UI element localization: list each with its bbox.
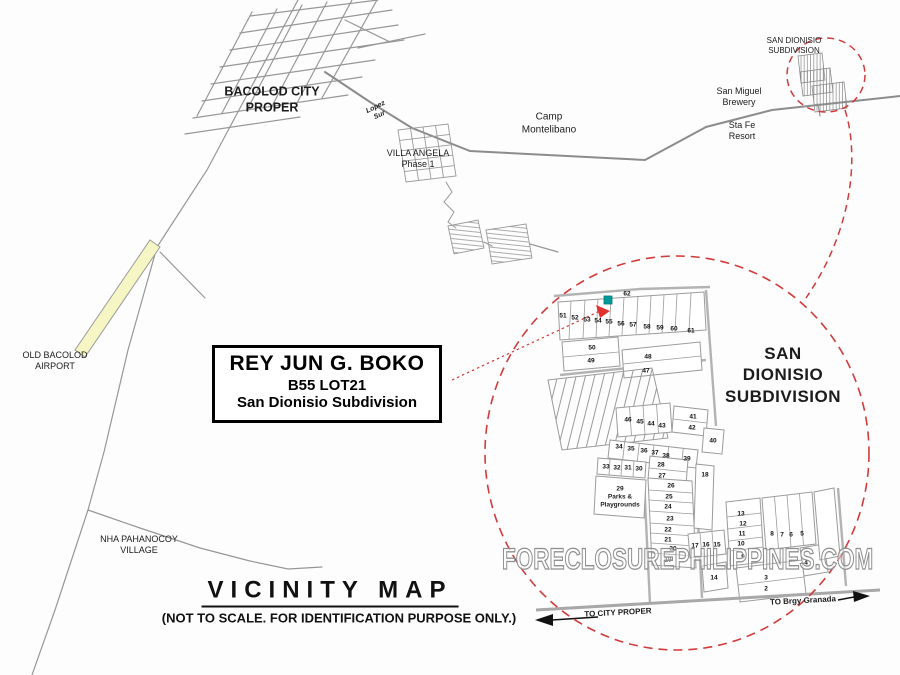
lot-number-14: 14	[710, 575, 718, 582]
lot-number-60: 60	[670, 326, 678, 333]
old-bacolod-airport-label: OLD BACOLOD AIRPORT	[22, 350, 87, 373]
lot-number-56: 56	[617, 321, 625, 328]
map-title: VICINITY MAP	[202, 577, 459, 608]
lot-number-28: 28	[657, 462, 665, 469]
subdivision-detail-blocks	[548, 287, 846, 604]
lot-number-32: 32	[613, 465, 621, 472]
lot-number-12: 12	[739, 521, 747, 528]
lot-number-17: 17	[691, 543, 699, 550]
lot-number-37: 37	[651, 450, 659, 457]
lot-number-51: 51	[559, 313, 567, 320]
parks-playgrounds-label: 29 Parks & Playgrounds	[600, 485, 639, 508]
lot-number-57: 57	[629, 322, 637, 329]
san-dionisio-top-label: SAN DIONISIO SUBDIVISION	[767, 36, 822, 56]
lot-number-9: 9	[741, 554, 745, 561]
lot-number-7: 7	[780, 532, 784, 539]
lot-number-62: 62	[623, 291, 631, 298]
lot-number-4: 4	[804, 560, 808, 567]
lot-number-39: 39	[683, 456, 691, 463]
lot-number-59: 59	[656, 325, 664, 332]
property-owner: REY JUN G. BOKO	[215, 352, 439, 376]
lot-number-43: 43	[658, 423, 666, 430]
lot-number-44: 44	[647, 421, 655, 428]
lot-number-6: 6	[789, 532, 793, 539]
map-subtitle: (NOT TO SCALE. FOR IDENTIFICATION PURPOS…	[162, 611, 516, 626]
lot-number-61: 61	[687, 328, 695, 335]
lot-number-40: 40	[709, 438, 717, 445]
san-miguel-brewery-label: San Miguel Brewery	[716, 86, 761, 109]
lot-number-8: 8	[770, 531, 774, 538]
lot-number-53: 53	[583, 317, 591, 324]
vicinity-map: 5152535455565758596061625049484746454443…	[0, 0, 900, 675]
lot-number-42: 42	[688, 425, 696, 432]
lot-number-11: 11	[739, 531, 746, 538]
lot-number-33: 33	[602, 464, 610, 471]
lot-number-38: 38	[662, 453, 670, 460]
nha-pahanocoy-label: NHA PAHANOCOY VILLAGE	[100, 534, 178, 557]
small-subdivision-grid-2	[486, 224, 532, 264]
lot-number-27: 27	[658, 473, 666, 480]
lot-number-47: 47	[642, 368, 650, 375]
lot-number-25: 25	[665, 494, 673, 501]
property-lot: B55 LOT21	[215, 377, 439, 394]
bacolod-city-label: BACOLOD CITY PROPER	[224, 84, 319, 115]
lot-number-21: 21	[664, 537, 672, 544]
sta-fe-resort-label: Sta Fe Resort	[729, 120, 756, 143]
property-callout-box: REY JUN G. BOKO B55 LOT21 San Dionisio S…	[212, 345, 442, 423]
lot-number-13: 13	[737, 511, 745, 518]
lot-number-41: 41	[689, 414, 697, 421]
lot-number-36: 36	[640, 448, 648, 455]
camp-montelibano-label: Camp Montelibano	[522, 112, 576, 137]
lot-number-58: 58	[643, 324, 651, 331]
small-subdivision-grid-1	[448, 220, 484, 254]
lot-number-5: 5	[800, 531, 804, 538]
san-dionisio-mini-blocks	[798, 53, 847, 112]
lot-number-18: 18	[701, 472, 709, 479]
lot-number-34: 34	[615, 444, 623, 451]
map-canvas: 5152535455565758596061625049484746454443…	[0, 0, 900, 675]
lot-number-3: 3	[764, 575, 768, 582]
villa-angela-label: VILLA ANGELA Phase 1	[387, 148, 450, 171]
san-dionisio-big-label: SAN DIONISIO SUBDIVISION	[725, 343, 842, 407]
lot-number-2: 2	[764, 586, 768, 593]
lot-number-49: 49	[587, 358, 595, 365]
lot-number-31: 31	[624, 465, 632, 472]
lot-number-15: 15	[713, 542, 721, 549]
lot-number-24: 24	[664, 504, 672, 511]
lot-number-45: 45	[636, 419, 644, 426]
lot-number-55: 55	[605, 319, 613, 326]
lot-number-35: 35	[627, 446, 635, 453]
lot-number-54: 54	[594, 318, 602, 325]
lot-number-30: 30	[635, 466, 643, 473]
lot-number-52: 52	[571, 315, 579, 322]
property-subdivision: San Dionisio Subdivision	[215, 394, 439, 411]
airport-runway	[75, 240, 160, 357]
lot-number-10: 10	[737, 541, 745, 548]
lot-number-22: 22	[664, 527, 672, 534]
lot-number-50: 50	[588, 345, 596, 352]
lot-number-16: 16	[702, 542, 710, 549]
lot-number-46: 46	[624, 417, 632, 424]
lot-number-26: 26	[667, 483, 675, 490]
lot-number-20: 20	[669, 546, 677, 553]
lot-number-48: 48	[644, 354, 652, 361]
lot-number-23: 23	[666, 516, 674, 523]
lot-number-19: 19	[664, 557, 672, 564]
circle-connector-line	[806, 110, 852, 298]
